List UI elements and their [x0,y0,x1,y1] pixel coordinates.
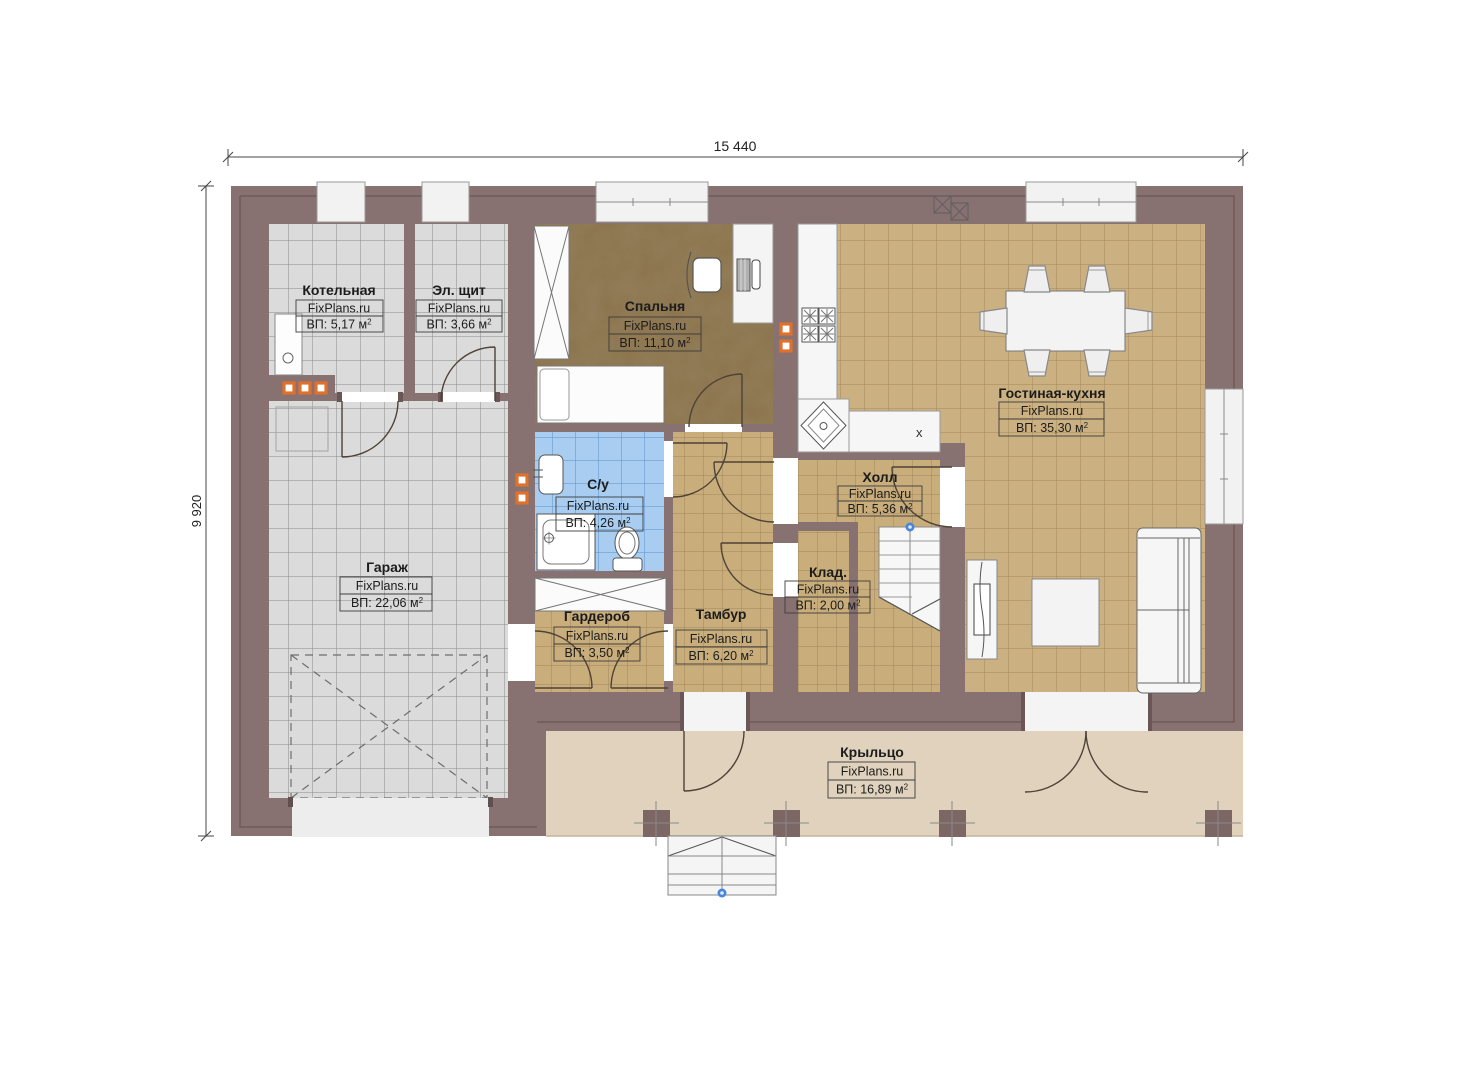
svg-text:FixPlans.ru: FixPlans.ru [690,632,753,646]
svg-text:FixPlans.ru: FixPlans.ru [624,319,687,333]
svg-text:Гостиная-кухня: Гостиная-кухня [998,385,1105,401]
svg-text:ВП: 5,36 м2: ВП: 5,36 м2 [847,502,913,516]
svg-text:Крыльцо: Крыльцо [840,744,904,760]
svg-text:ВП: 4,26 м2: ВП: 4,26 м2 [565,516,631,530]
svg-text:FixPlans.ru: FixPlans.ru [849,487,912,501]
svg-text:ВП: 16,89 м2: ВП: 16,89 м2 [836,783,909,797]
svg-text:Эл. щит: Эл. щит [432,282,486,298]
svg-text:С/у: С/у [587,476,609,492]
svg-text:Гараж: Гараж [366,559,409,575]
svg-text:FixPlans.ru: FixPlans.ru [567,499,630,513]
svg-text:FixPlans.ru: FixPlans.ru [308,302,371,316]
svg-text:ВП: 35,30 м2: ВП: 35,30 м2 [1016,421,1089,435]
svg-text:Котельная: Котельная [302,282,375,298]
svg-text:Клад.: Клад. [809,564,847,580]
svg-text:ВП: 11,10 м2: ВП: 11,10 м2 [619,336,691,350]
svg-text:ВП: 6,20 м2: ВП: 6,20 м2 [688,649,754,663]
svg-text:FixPlans.ru: FixPlans.ru [1021,404,1084,418]
svg-text:FixPlans.ru: FixPlans.ru [841,765,904,779]
svg-text:FixPlans.ru: FixPlans.ru [797,583,860,597]
svg-text:ВП: 5,17 м2: ВП: 5,17 м2 [306,318,372,332]
svg-text:ВП: 22,06 м2: ВП: 22,06 м2 [351,596,424,610]
svg-text:ВП: 3,50 м2: ВП: 3,50 м2 [564,646,630,660]
svg-text:ВП: 3,66 м2: ВП: 3,66 м2 [426,318,492,332]
svg-text:9 920: 9 920 [189,495,204,528]
svg-text:15 440: 15 440 [714,138,757,154]
svg-text:Гардероб: Гардероб [564,608,631,624]
svg-text:x: x [916,425,923,440]
svg-text:FixPlans.ru: FixPlans.ru [428,302,491,316]
svg-text:FixPlans.ru: FixPlans.ru [566,629,629,643]
svg-text:Тамбур: Тамбур [696,606,747,622]
svg-text:Холл: Холл [862,469,897,485]
svg-text:Спальня: Спальня [625,298,685,314]
svg-text:ВП: 2,00 м2: ВП: 2,00 м2 [795,599,861,613]
svg-text:FixPlans.ru: FixPlans.ru [356,579,419,593]
